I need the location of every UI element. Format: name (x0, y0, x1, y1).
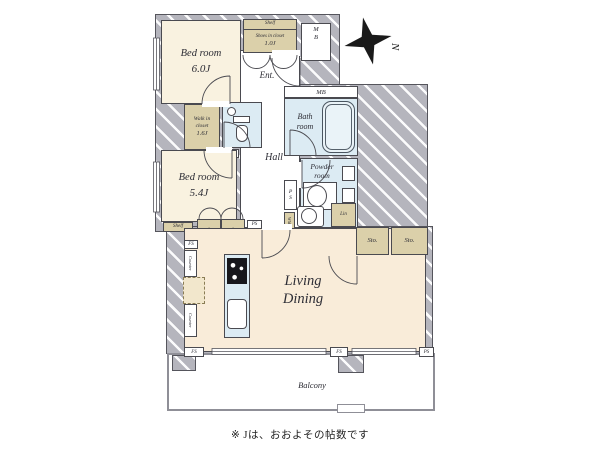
footnote: ※ Jは、おおよその帖数です (10, 427, 590, 442)
compass-north-label: N (389, 42, 401, 51)
doors-windows-overlay (0, 0, 600, 450)
compass: N (340, 14, 404, 72)
powder-door-arc (302, 160, 330, 188)
bedroom2-door-arc (204, 150, 232, 178)
entry-door-arc (272, 58, 300, 86)
toilet-door-arc (224, 122, 250, 148)
floor-plan: Bed room 6.0J Shelf Shoes in closet 1.0J… (0, 0, 600, 450)
closet-bifold-arcs (199, 208, 243, 219)
living-left-door-arc (262, 230, 290, 258)
bathroom-door-arc (290, 130, 316, 156)
door-arcs (199, 55, 357, 284)
windows (154, 38, 417, 355)
shoes-closet-bifold-arcs (243, 55, 297, 69)
compass-star-icon (345, 18, 392, 65)
footnote-text: ※ Jは、おおよその帖数です (231, 430, 369, 441)
bedroom1-door-arc (202, 76, 230, 104)
living-right-door-arc (329, 256, 357, 284)
